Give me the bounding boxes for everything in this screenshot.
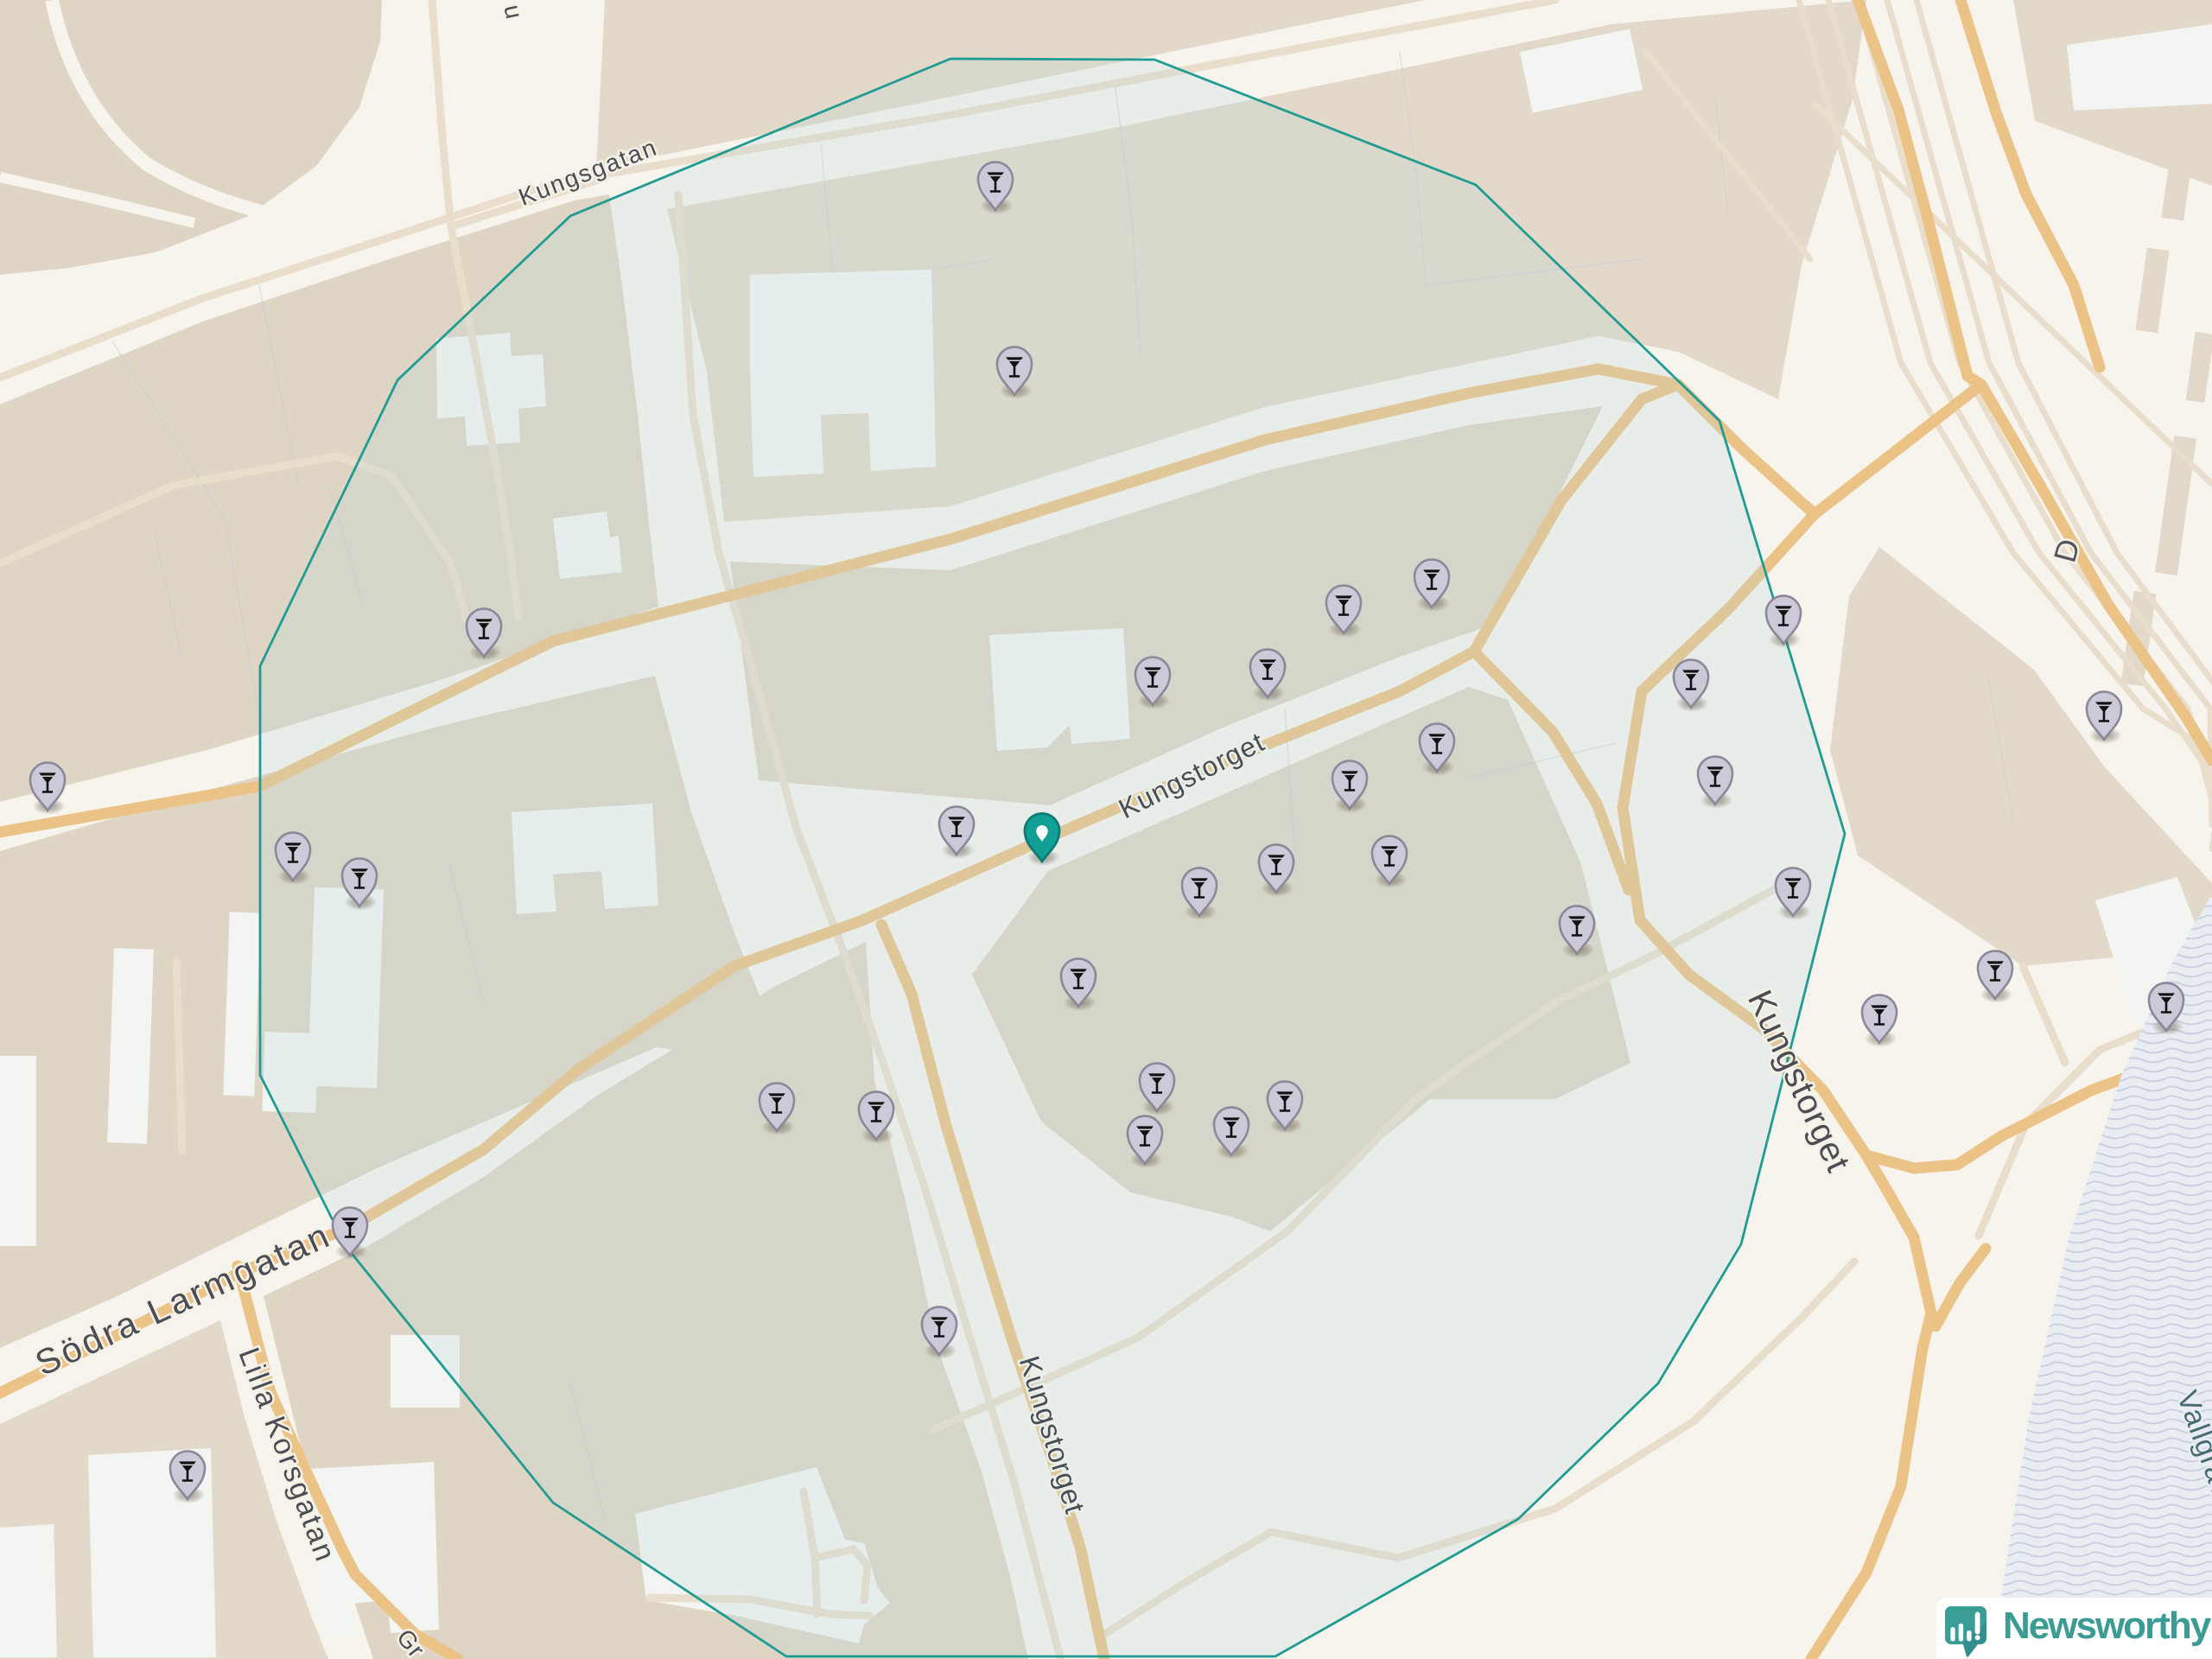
svg-text:Newsworthy: Newsworthy	[2003, 1605, 2212, 1647]
